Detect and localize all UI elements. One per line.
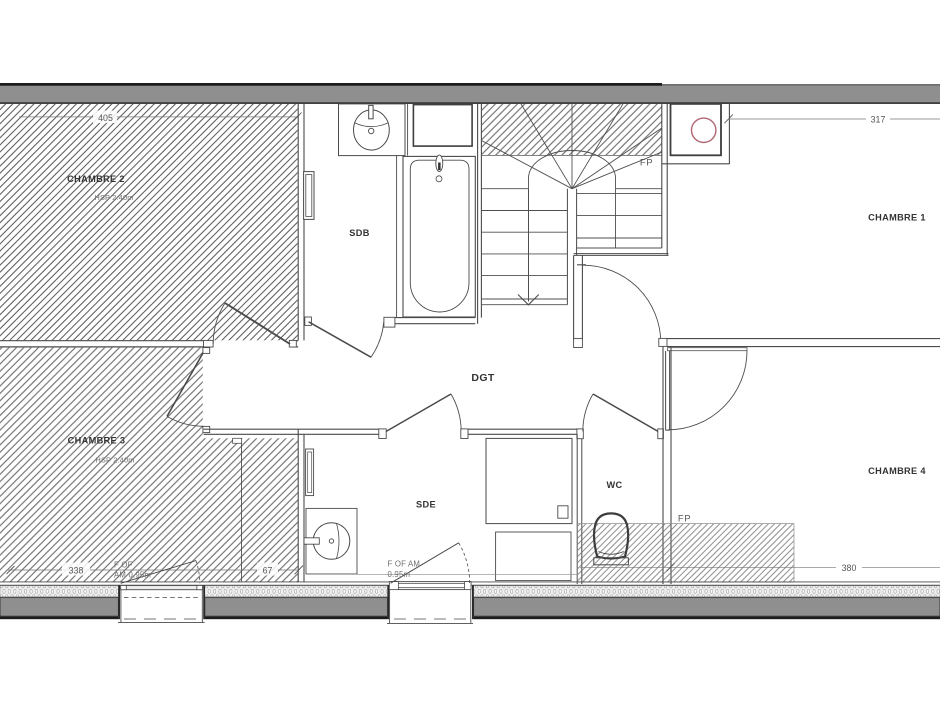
svg-text:0.95m: 0.95m xyxy=(388,570,411,579)
svg-text:DGT: DGT xyxy=(471,372,494,384)
svg-text:SDB: SDB xyxy=(349,228,369,238)
svg-text:HSP 2.40m: HSP 2.40m xyxy=(95,193,134,202)
svg-text:CHAMBRE 4: CHAMBRE 4 xyxy=(868,466,926,476)
svg-text:CHAMBRE 1: CHAMBRE 1 xyxy=(868,213,926,223)
svg-text:67: 67 xyxy=(263,566,273,576)
svg-text:CHAMBRE 2: CHAMBRE 2 xyxy=(67,174,125,184)
svg-text:317: 317 xyxy=(871,115,886,125)
svg-text:CHAMBRE 3: CHAMBRE 3 xyxy=(68,436,126,446)
svg-text:380: 380 xyxy=(842,563,857,573)
svg-text:F OF AM: F OF AM xyxy=(388,560,421,569)
svg-text:F OF: F OF xyxy=(114,561,133,570)
svg-text:HSP 2.40m: HSP 2.40m xyxy=(96,456,135,465)
svg-text:WC: WC xyxy=(606,480,622,490)
svg-text:FP: FP xyxy=(640,158,653,169)
svg-text:405: 405 xyxy=(98,113,113,123)
svg-text:SDE: SDE xyxy=(416,500,436,510)
svg-text:FP: FP xyxy=(678,514,691,525)
svg-text:338: 338 xyxy=(69,566,84,576)
svg-text:AM 0.95m: AM 0.95m xyxy=(114,571,151,580)
